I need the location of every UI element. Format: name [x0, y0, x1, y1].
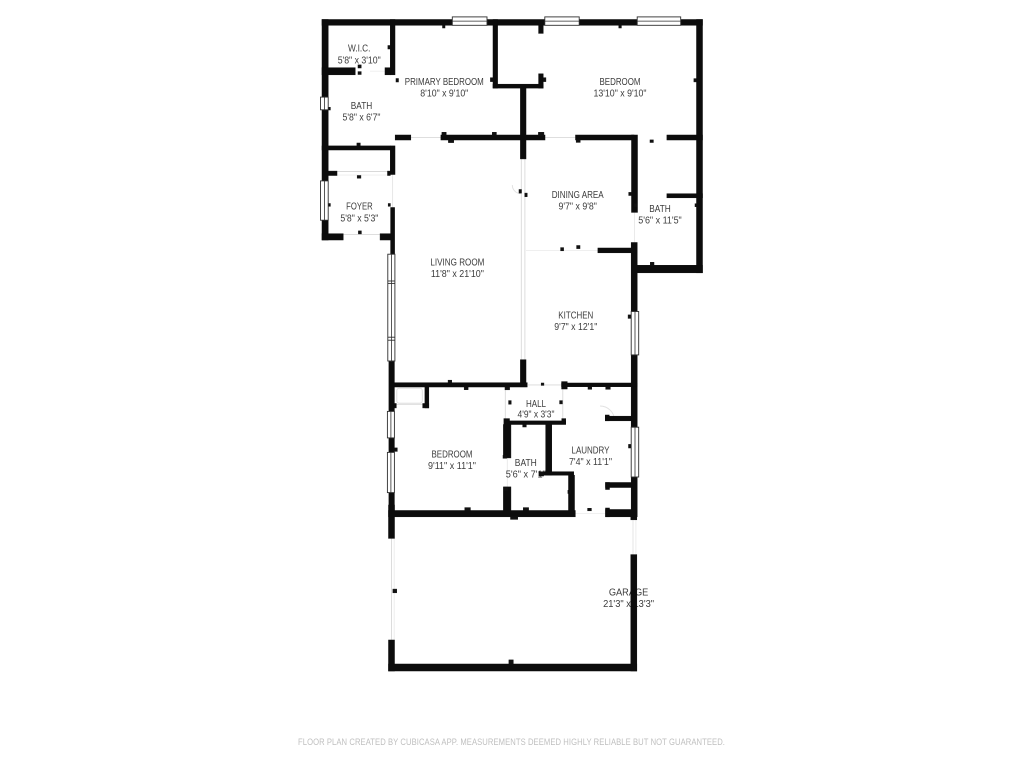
- svg-text:W.I.C.: W.I.C.: [348, 44, 371, 55]
- svg-text:GARAGE: GARAGE: [609, 587, 649, 598]
- svg-text:LAUNDRY: LAUNDRY: [572, 445, 610, 456]
- svg-text:5'8" x 5'3": 5'8" x 5'3": [340, 213, 378, 224]
- svg-text:9'7" x 9'8": 9'7" x 9'8": [558, 202, 597, 213]
- svg-text:21'3" x 13'3": 21'3" x 13'3": [603, 599, 655, 610]
- svg-text:9'11" x 11'1": 9'11" x 11'1": [428, 461, 477, 472]
- svg-text:13'10" x 9'10": 13'10" x 9'10": [594, 89, 647, 100]
- svg-text:BEDROOM: BEDROOM: [600, 77, 641, 88]
- svg-text:PRIMARY BEDROOM: PRIMARY BEDROOM: [405, 77, 484, 88]
- svg-text:11'8" x 21'10": 11'8" x 21'10": [431, 269, 485, 280]
- svg-text:BATH: BATH: [515, 458, 537, 469]
- svg-text:LIVING ROOM: LIVING ROOM: [430, 258, 484, 269]
- svg-text:5'6" x 11'5": 5'6" x 11'5": [638, 216, 682, 227]
- svg-text:FOYER: FOYER: [346, 202, 373, 213]
- svg-text:5'8" x 6'7": 5'8" x 6'7": [343, 113, 381, 124]
- svg-text:FLOOR PLAN CREATED BY CUBICASA: FLOOR PLAN CREATED BY CUBICASA APP. MEAS…: [298, 736, 725, 747]
- svg-text:BEDROOM: BEDROOM: [432, 449, 473, 460]
- svg-text:KITCHEN: KITCHEN: [558, 310, 593, 321]
- svg-text:BATH: BATH: [649, 204, 671, 215]
- svg-text:7'4" x 11'1": 7'4" x 11'1": [569, 457, 613, 468]
- svg-text:9'7" x 12'1": 9'7" x 12'1": [554, 322, 597, 333]
- svg-text:8'10" x 9'10": 8'10" x 9'10": [420, 89, 468, 100]
- svg-text:5'8" x 3'10": 5'8" x 3'10": [338, 55, 381, 66]
- svg-text:4'9" x 3'3": 4'9" x 3'3": [518, 410, 555, 421]
- svg-text:BATH: BATH: [351, 101, 373, 112]
- svg-text:DINING AREA: DINING AREA: [552, 190, 604, 201]
- svg-text:HALL: HALL: [526, 399, 547, 410]
